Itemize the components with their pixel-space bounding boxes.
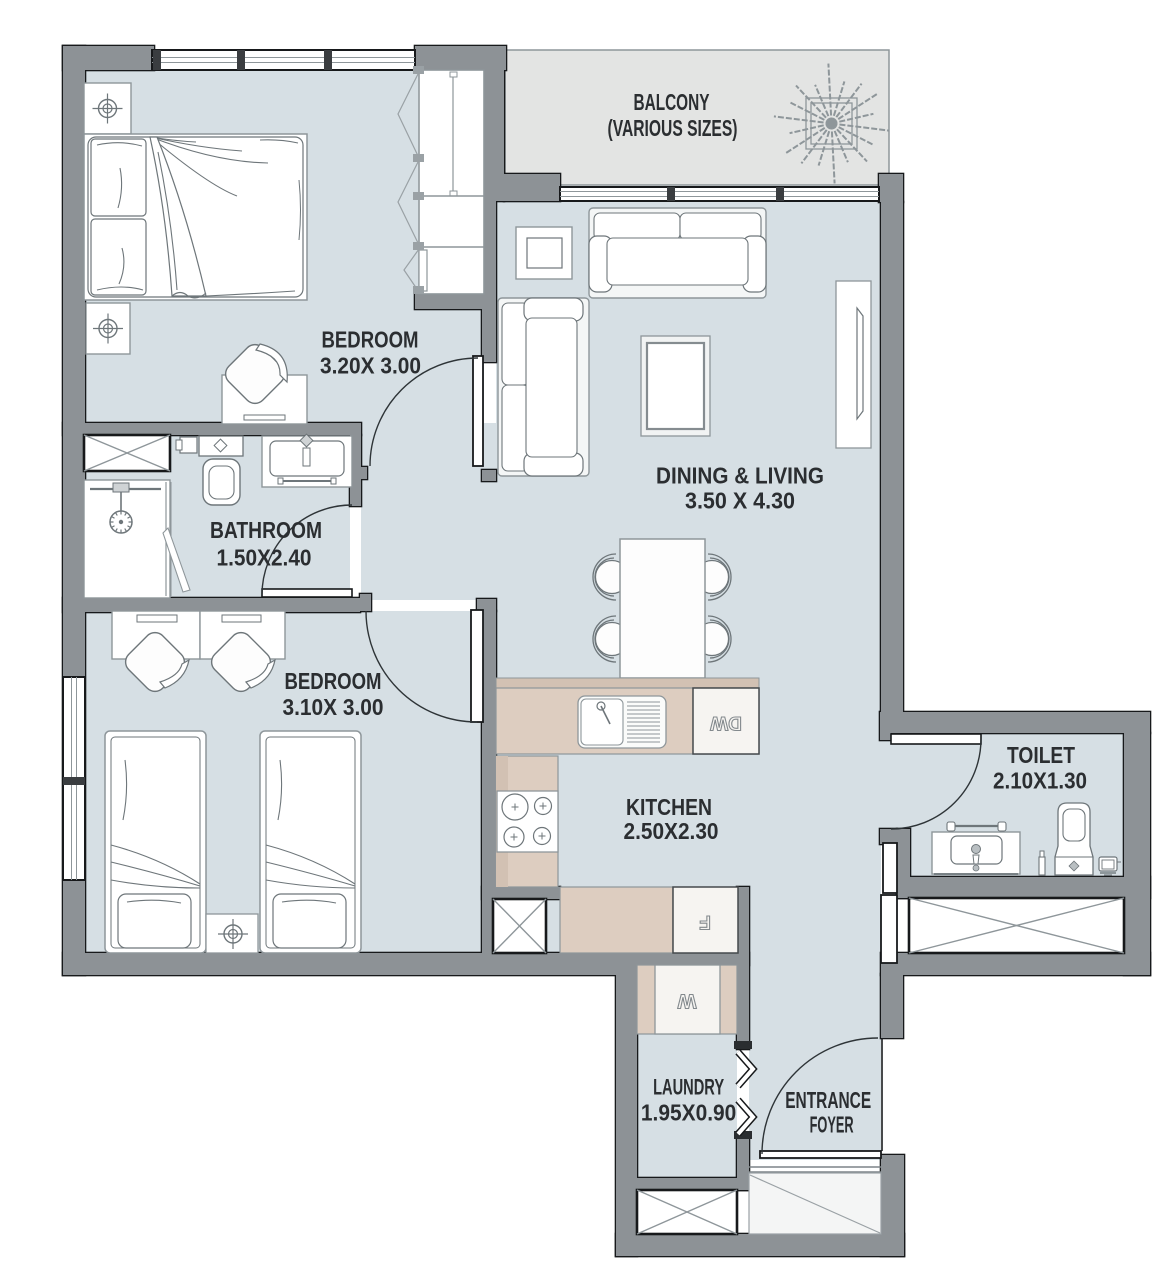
svg-text:2.50X2.30: 2.50X2.30: [624, 818, 719, 844]
svg-text:ENTRANCE: ENTRANCE: [785, 1087, 871, 1113]
svg-text:3.50 X 4.30: 3.50 X 4.30: [685, 488, 795, 514]
svg-text:BATHROOM: BATHROOM: [210, 517, 322, 543]
svg-text:3.10X 3.00: 3.10X 3.00: [283, 694, 384, 720]
svg-text:BEDROOM: BEDROOM: [285, 668, 382, 694]
svg-text:DINING & LIVING: DINING & LIVING: [656, 463, 824, 489]
svg-text:LAUNDRY: LAUNDRY: [653, 1075, 724, 1100]
svg-text:1.95X0.90: 1.95X0.90: [641, 1099, 736, 1125]
svg-text:BALCONY: BALCONY: [634, 89, 710, 115]
svg-text:1.50X2.40: 1.50X2.40: [217, 545, 312, 571]
svg-text:F: F: [699, 911, 711, 932]
svg-text:2.10X1.30: 2.10X1.30: [993, 768, 1087, 794]
svg-text:FOYER: FOYER: [810, 1112, 854, 1138]
svg-text:BEDROOM: BEDROOM: [322, 327, 419, 353]
svg-text:DW: DW: [710, 712, 742, 733]
svg-text:(VARIOUS SIZES): (VARIOUS SIZES): [608, 115, 738, 141]
svg-text:W: W: [677, 990, 696, 1012]
svg-text:KITCHEN: KITCHEN: [626, 794, 712, 820]
svg-text:TOILET: TOILET: [1007, 742, 1075, 768]
svg-text:3.20X 3.00: 3.20X 3.00: [320, 353, 421, 379]
